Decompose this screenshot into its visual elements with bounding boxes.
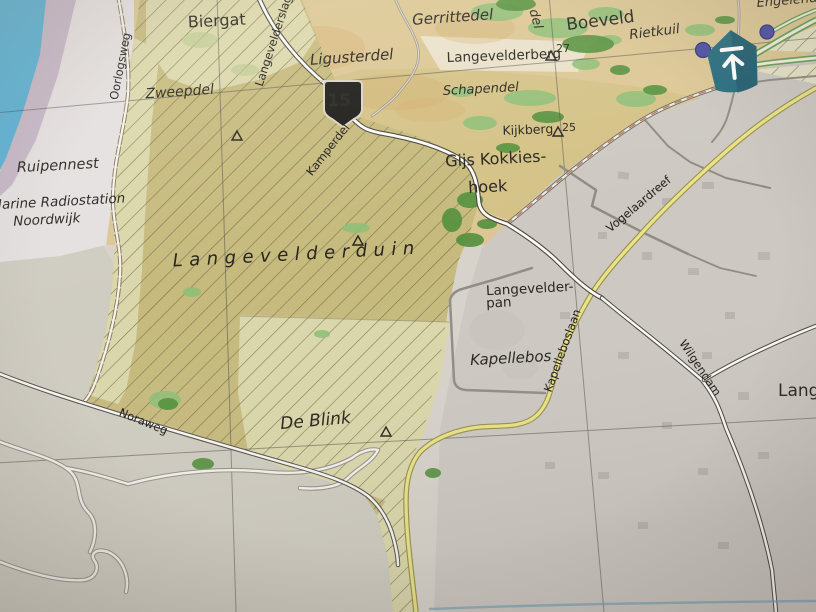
map-photo: 15 Biergat Zweepdel Ligusterdel Gerritte… — [0, 0, 816, 612]
map-canvas: 15 Biergat Zweepdel Ligusterdel Gerritte… — [0, 0, 816, 612]
photo-vignette — [0, 0, 816, 612]
